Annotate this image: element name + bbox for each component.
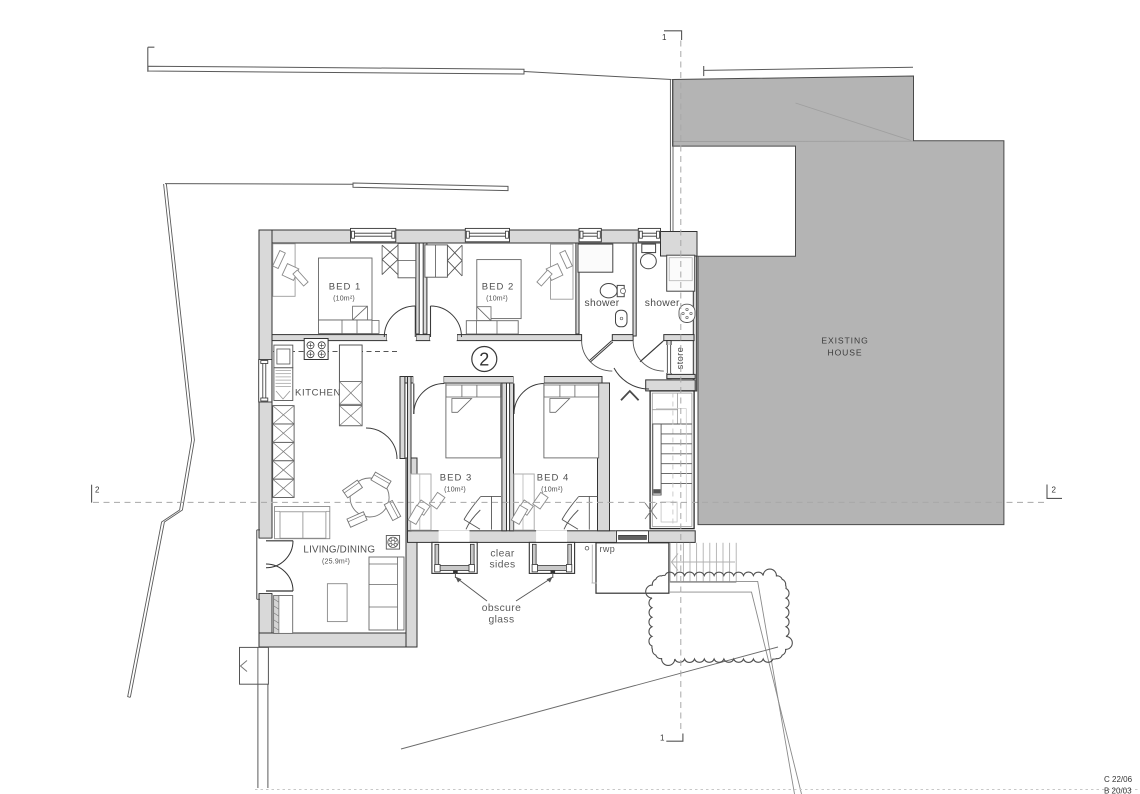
svg-text:2: 2 bbox=[1052, 486, 1057, 495]
svg-text:2: 2 bbox=[479, 350, 489, 370]
svg-text:KITCHEN: KITCHEN bbox=[295, 388, 341, 399]
svg-text:HOUSE: HOUSE bbox=[827, 348, 862, 358]
svg-text:B 20/03: B 20/03 bbox=[1104, 787, 1132, 794]
svg-text:rwp: rwp bbox=[600, 544, 616, 554]
svg-text:(10m²): (10m²) bbox=[333, 296, 355, 303]
svg-text:C 22/06: C 22/06 bbox=[1104, 775, 1133, 784]
svg-text:BED 3: BED 3 bbox=[440, 473, 472, 484]
svg-text:BED 2: BED 2 bbox=[482, 282, 514, 293]
svg-text:BED 4: BED 4 bbox=[537, 473, 569, 484]
svg-text:2: 2 bbox=[95, 486, 100, 495]
svg-text:shower: shower bbox=[645, 298, 680, 309]
svg-text:glass: glass bbox=[488, 615, 514, 626]
svg-text:1: 1 bbox=[662, 33, 667, 42]
svg-text:(10m²): (10m²) bbox=[541, 487, 563, 494]
svg-text:EXISTING: EXISTING bbox=[821, 336, 868, 346]
svg-text:(10m²): (10m²) bbox=[444, 487, 466, 494]
svg-text:BED 1: BED 1 bbox=[329, 282, 361, 293]
svg-text:store: store bbox=[675, 347, 685, 370]
svg-text:shower: shower bbox=[585, 298, 620, 309]
svg-text:clear: clear bbox=[490, 549, 514, 560]
svg-text:1: 1 bbox=[660, 734, 665, 743]
svg-text:LIVING/DINING: LIVING/DINING bbox=[303, 544, 375, 555]
svg-text:obscure: obscure bbox=[482, 603, 521, 614]
svg-text:(25.9m²): (25.9m²) bbox=[322, 559, 350, 566]
svg-text:sides: sides bbox=[489, 560, 515, 571]
svg-text:(10m²): (10m²) bbox=[486, 296, 508, 303]
